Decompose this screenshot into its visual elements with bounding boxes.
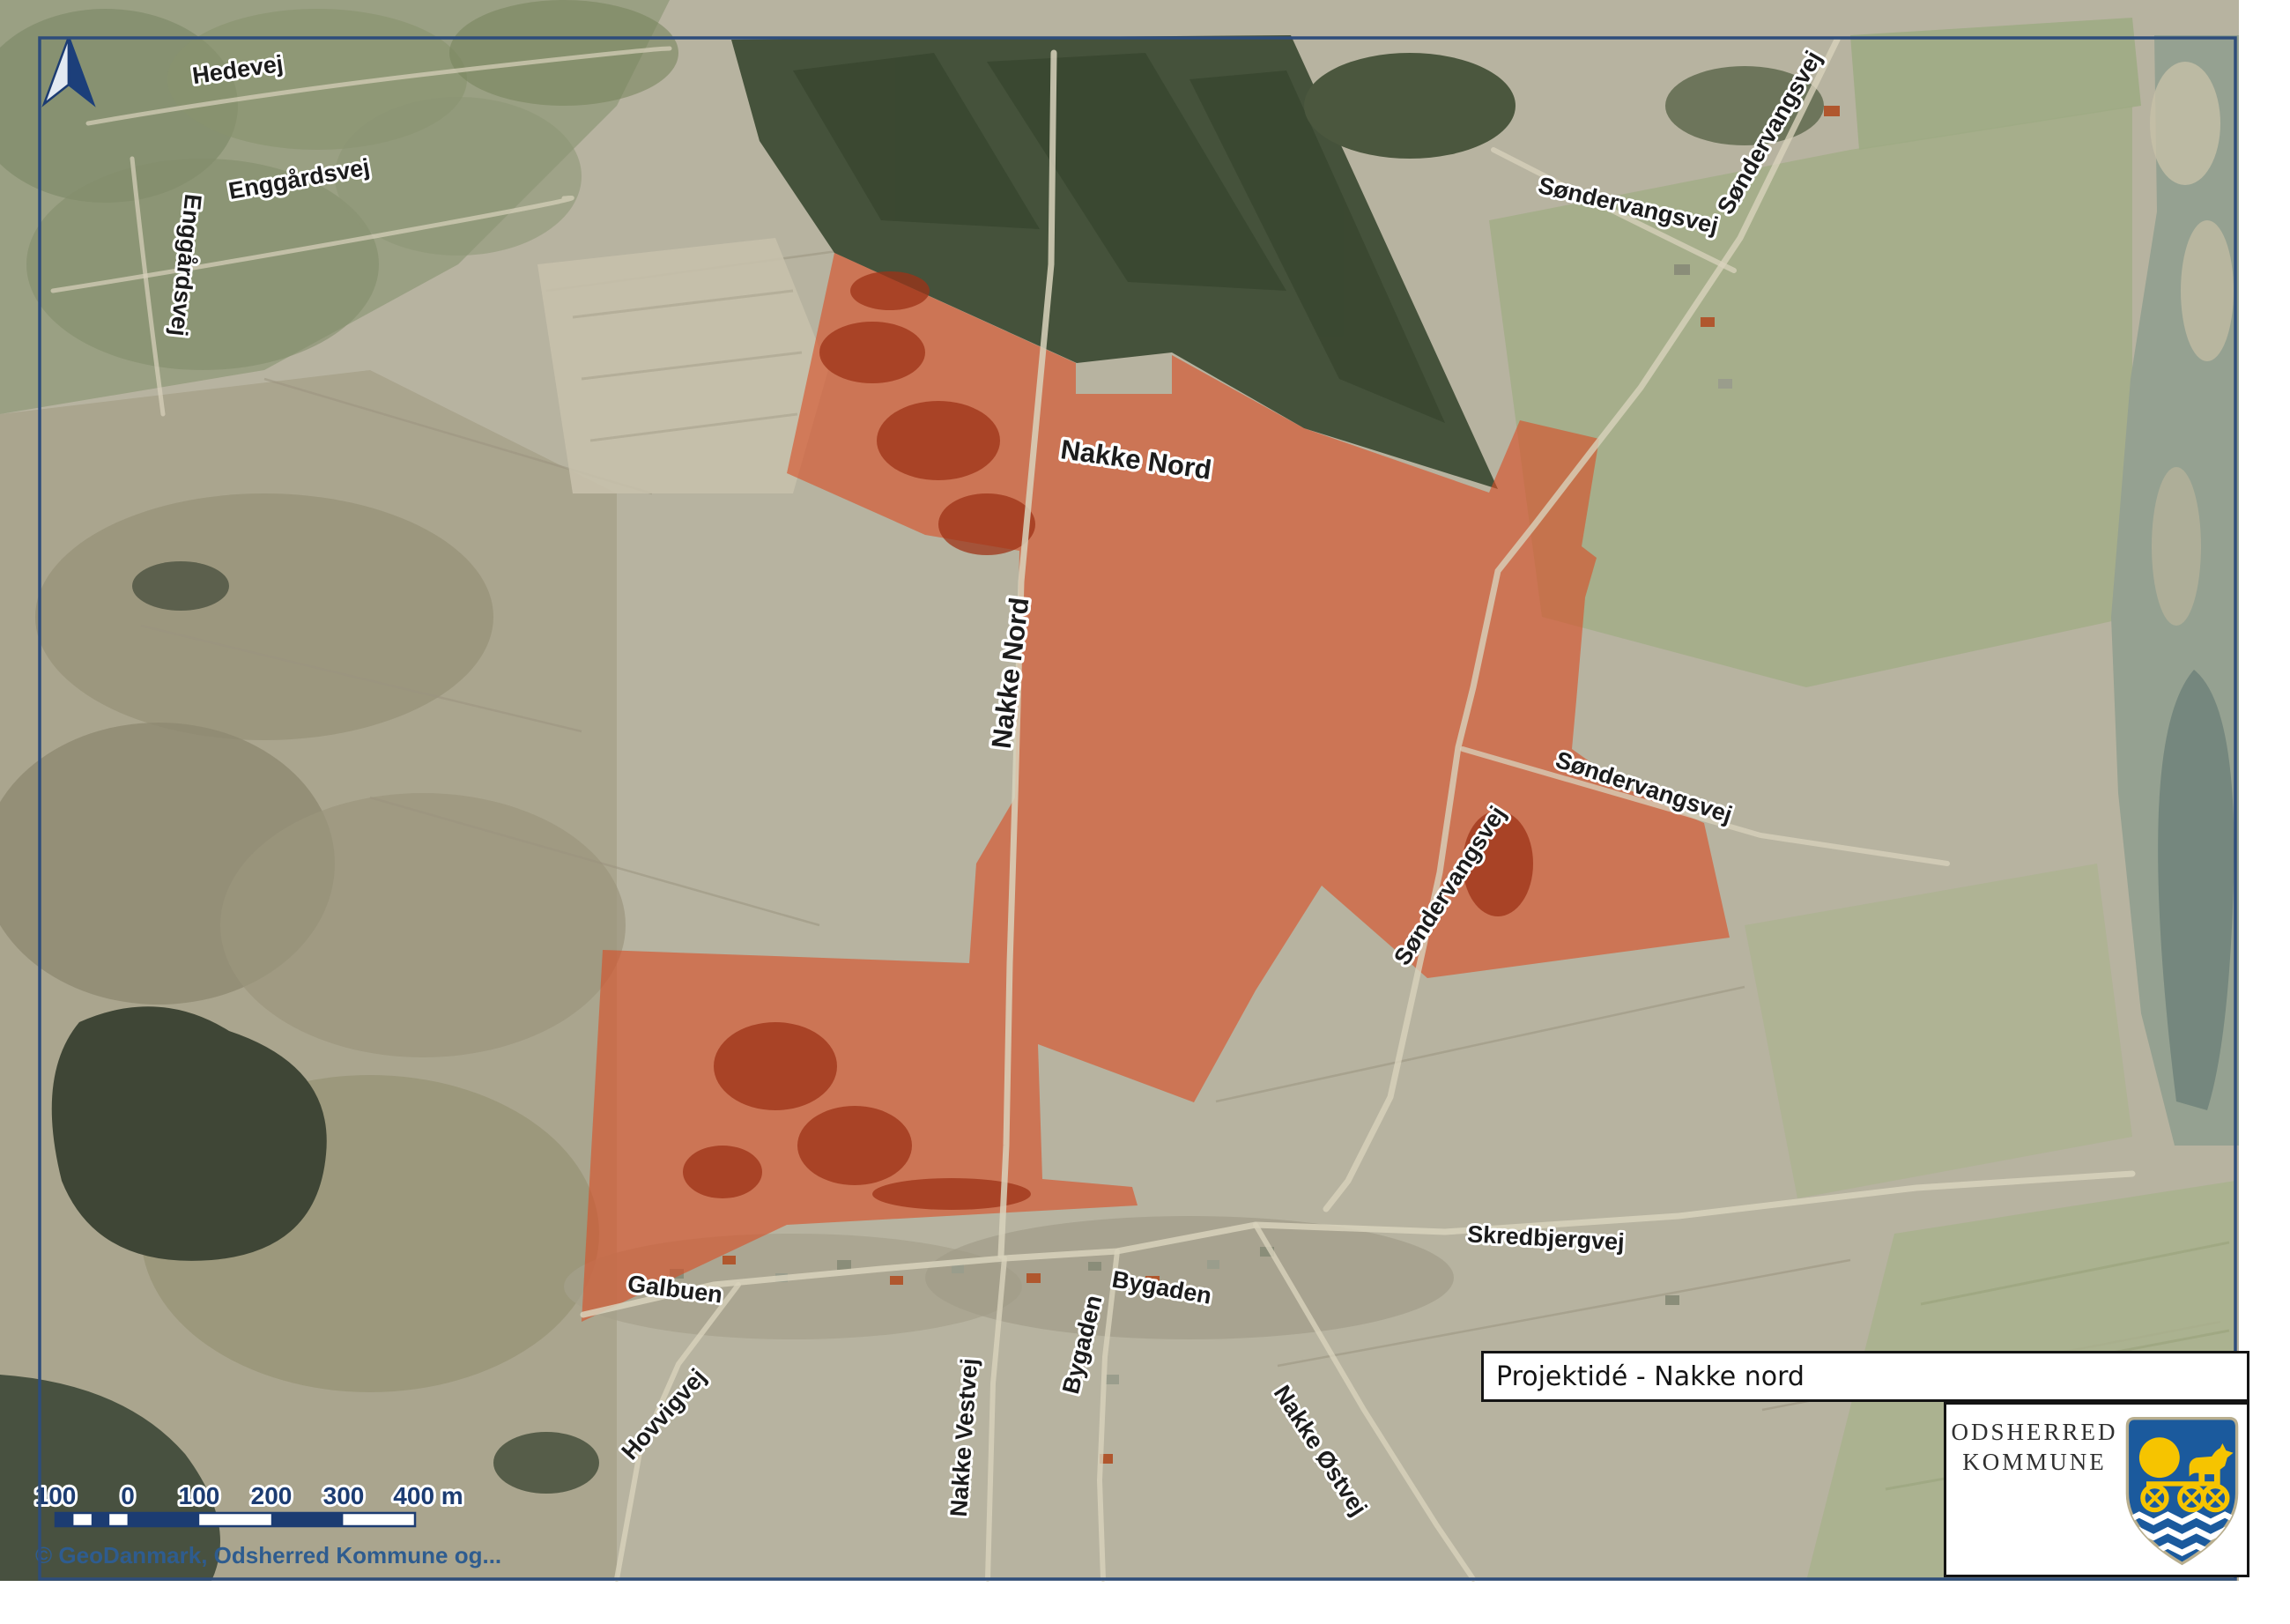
scale-tick-label: 100 xyxy=(179,1482,220,1509)
marsh-patch xyxy=(220,793,626,1057)
logo-box: ODSHERRED KOMMUNE xyxy=(1944,1402,2249,1577)
coat-of-arms xyxy=(2123,1412,2242,1570)
scale-bar-segments xyxy=(56,1513,343,1526)
tree-patch xyxy=(1304,53,1516,159)
logo-text: ODSHERRED KOMMUNE xyxy=(1946,1417,2123,1477)
scale-tick-label: 0 xyxy=(121,1482,135,1509)
attribution-text: © GeoDanmark, Odsherred Kommune og... xyxy=(35,1542,501,1568)
scale-tick-label: 300 xyxy=(323,1482,365,1509)
sandbar xyxy=(2152,467,2201,626)
marsh-patch xyxy=(35,493,493,740)
tree-patch xyxy=(449,0,678,106)
tree-patch xyxy=(335,97,582,256)
sandbar xyxy=(2181,220,2234,361)
sun-icon xyxy=(2139,1437,2180,1478)
logo-line-2: KOMMUNE xyxy=(1946,1447,2123,1477)
sandbar xyxy=(2150,62,2220,185)
pond xyxy=(132,561,229,611)
title-box: Projektidé - Nakke nord xyxy=(1481,1351,2249,1402)
scale-tick-label: 400 m xyxy=(393,1482,463,1509)
scale-tick-label: 200 xyxy=(251,1482,293,1509)
map-title: Projektidé - Nakke nord xyxy=(1484,1361,1805,1392)
logo-line-1: ODSHERRED xyxy=(1946,1417,2123,1447)
pond xyxy=(493,1432,599,1494)
sun-chariot-shield xyxy=(2123,1412,2242,1570)
